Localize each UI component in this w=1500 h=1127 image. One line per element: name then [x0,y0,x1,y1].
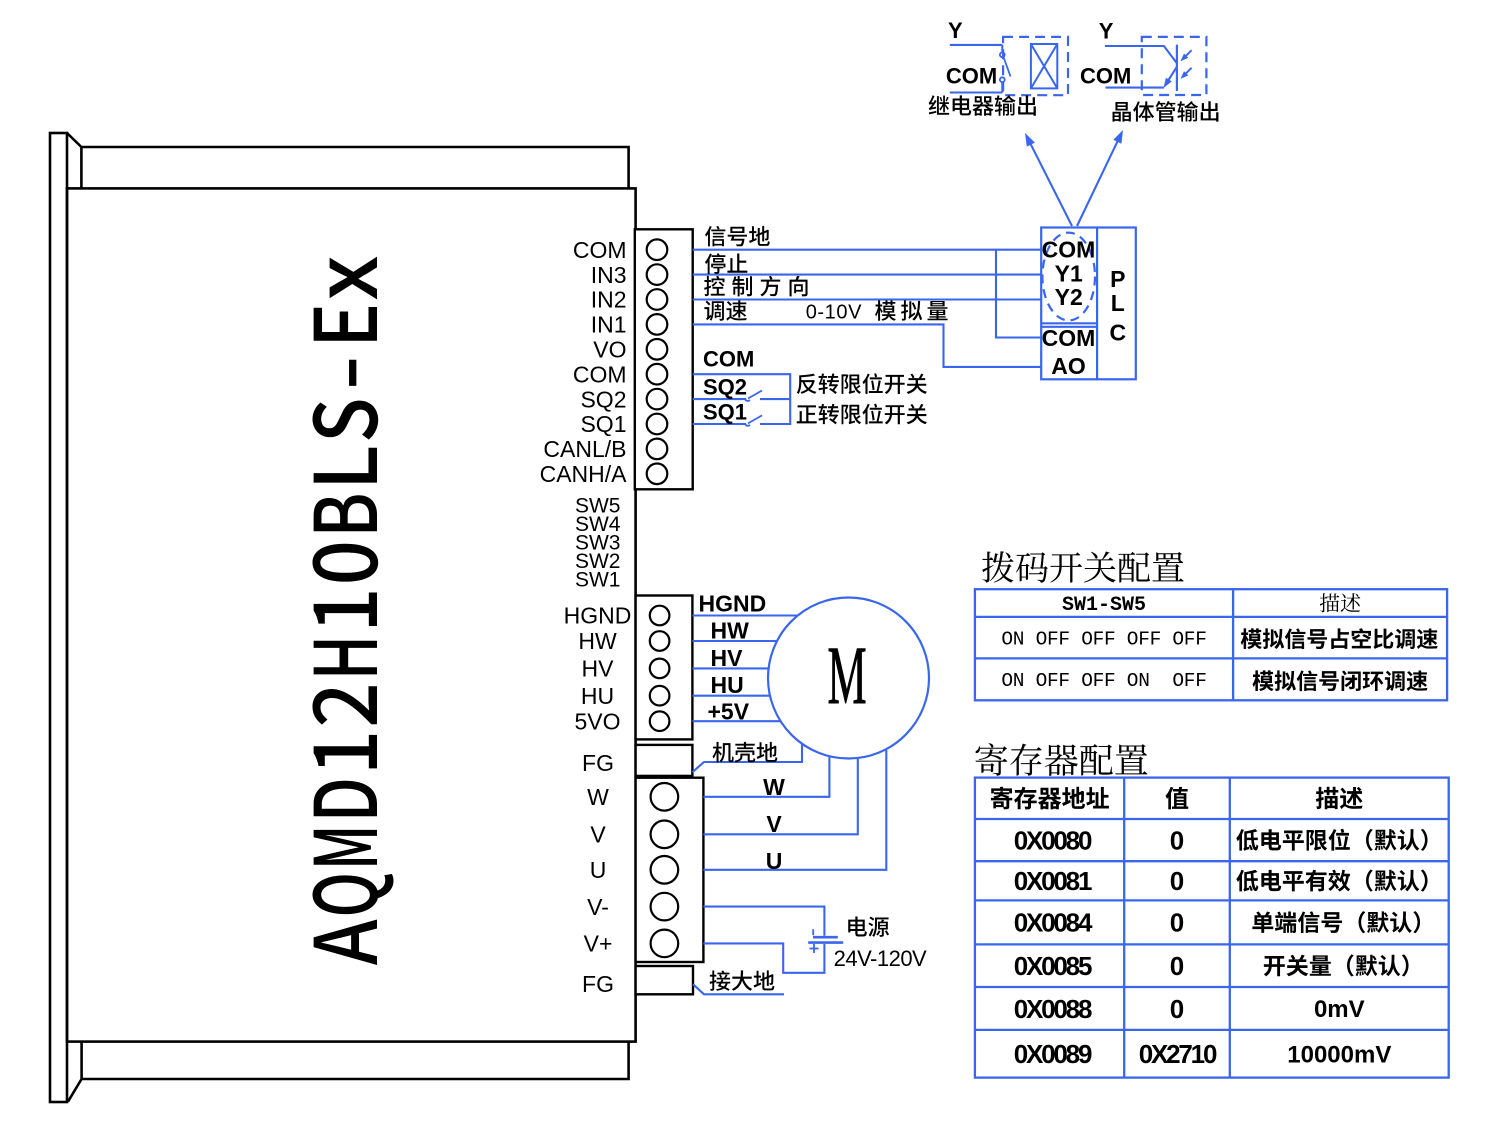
svg-text:HV: HV [582,656,615,682]
svg-text:SQ1: SQ1 [580,411,626,437]
svg-text:HV: HV [711,645,744,671]
svg-text:HW: HW [578,628,617,654]
svg-text:Y: Y [1099,18,1114,43]
svg-text:HGND: HGND [699,591,767,617]
svg-text:24V-120V: 24V-120V [834,946,927,971]
svg-text:M: M [827,631,866,722]
svg-text:V-: V- [587,894,609,920]
svg-text:0X0088: 0X0088 [1014,994,1092,1024]
svg-text:0X0084: 0X0084 [1014,908,1093,938]
svg-text:HU: HU [581,683,614,709]
svg-text:IN3: IN3 [591,262,627,288]
svg-text:FG: FG [582,750,614,776]
svg-text:0X0080: 0X0080 [1014,825,1092,855]
svg-text:W: W [587,784,609,810]
svg-text:COM: COM [946,64,997,89]
svg-text:Y: Y [948,18,963,43]
svg-text:0X0085: 0X0085 [1014,951,1092,981]
svg-text:0X0081: 0X0081 [1014,866,1092,896]
svg-text:SQ1: SQ1 [703,399,747,424]
svg-text:HW: HW [711,618,750,644]
svg-text:SQ2: SQ2 [703,375,747,400]
svg-text:COM: COM [1080,64,1131,89]
svg-text:U: U [766,848,783,874]
svg-text:CANH/A: CANH/A [540,461,628,487]
svg-text:5VO: 5VO [574,708,620,734]
svg-text:0: 0 [1170,951,1184,981]
svg-text:0: 0 [1170,825,1184,855]
svg-text:IN1: IN1 [591,312,627,338]
svg-text:CANL/B: CANL/B [543,436,626,462]
svg-text:V+: V+ [584,931,613,957]
svg-text:L: L [1111,290,1125,316]
svg-text:P: P [1110,266,1125,292]
svg-text:FG: FG [582,971,614,997]
svg-text:+5V: +5V [708,699,750,725]
svg-text:IN2: IN2 [591,287,627,313]
svg-text:C: C [1109,319,1126,345]
svg-text:V: V [766,811,782,837]
svg-text:SW1-SW5: SW1-SW5 [1062,594,1146,617]
svg-text:SQ2: SQ2 [580,386,626,412]
svg-text:Y2: Y2 [1055,284,1083,310]
svg-text:HGND: HGND [564,603,632,629]
svg-text:ON OFF OFF ON OFF: ON OFF OFF ON OFF [1001,670,1206,692]
svg-text:V: V [590,822,606,848]
svg-text:0X2710: 0X2710 [1139,1039,1217,1069]
svg-text:0: 0 [1170,908,1184,938]
svg-text:0: 0 [1170,994,1184,1024]
svg-text:COM: COM [1042,325,1096,351]
svg-text:AO: AO [1051,353,1086,379]
svg-text:COM: COM [573,361,627,387]
svg-text:VO: VO [593,337,626,363]
svg-text:0mV: 0mV [1314,996,1365,1023]
svg-text:Y1: Y1 [1055,260,1083,286]
svg-text:HU: HU [711,672,744,698]
svg-text:0: 0 [1170,866,1184,896]
svg-text:COM: COM [703,346,754,371]
svg-text:0X0089: 0X0089 [1014,1039,1092,1069]
svg-text:0-10V: 0-10V [806,301,862,323]
svg-text:COM: COM [1042,236,1096,262]
svg-text:COM: COM [573,237,627,263]
svg-text:10000mV: 10000mV [1287,1041,1391,1068]
svg-text:ON OFF OFF OFF OFF: ON OFF OFF OFF OFF [1001,629,1206,651]
svg-text:W: W [763,774,785,800]
svg-text:SW1: SW1 [575,569,621,592]
svg-text:U: U [590,857,607,883]
